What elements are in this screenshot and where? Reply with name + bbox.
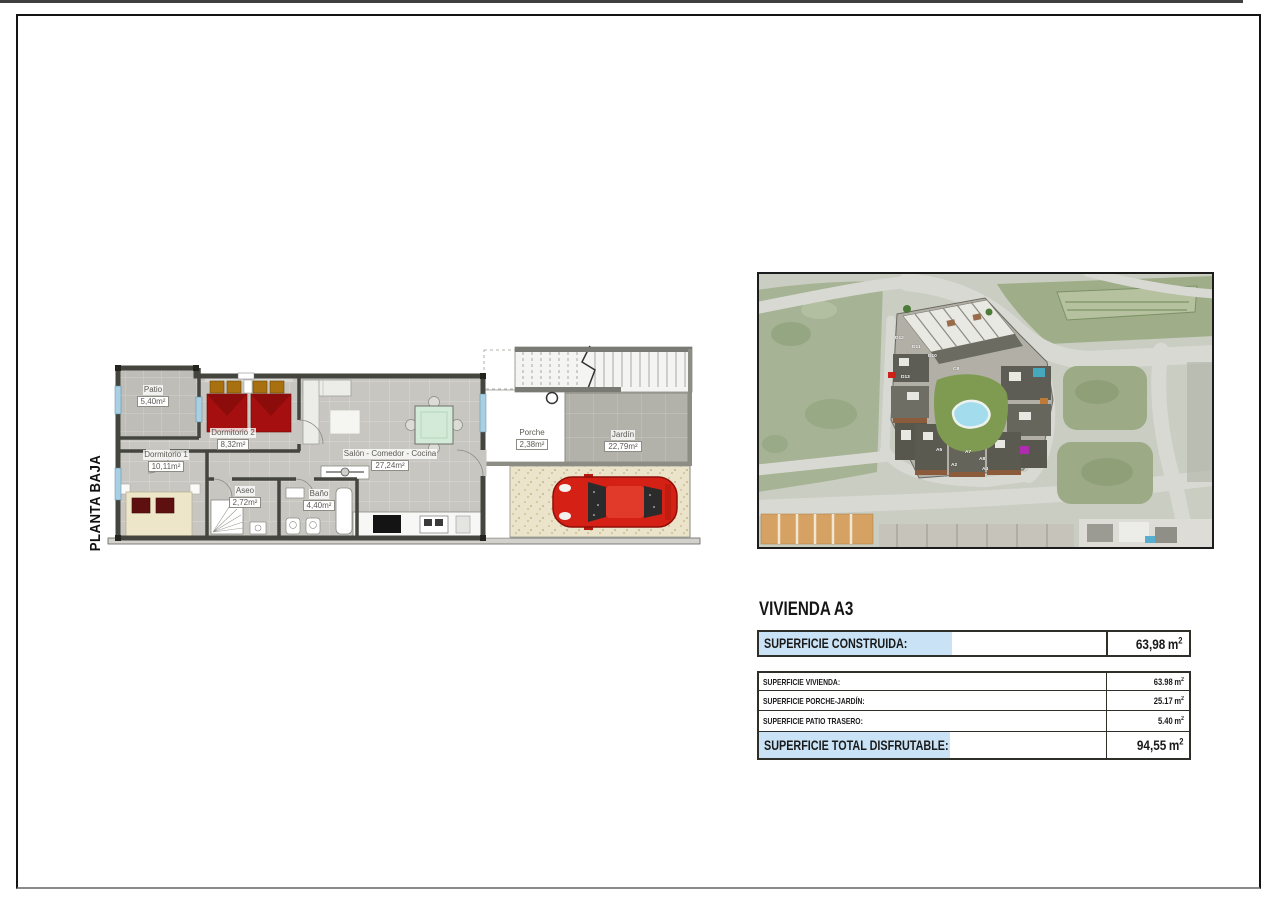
room-label-bano: Baño 4,40m² — [296, 489, 342, 511]
map-unit-label: A4 — [982, 467, 988, 472]
room-label-patio: Patio 5,40m² — [128, 385, 178, 407]
table-row-total: SUPERFICIE TOTAL DISFRUTABLE: 94,55m2 — [759, 731, 1189, 758]
rug — [330, 410, 360, 434]
table-row-patio-trasero: SUPERFICIE PATIO TRASERO: 5.40m2 — [759, 710, 1189, 731]
map-unit-label: D12 — [895, 336, 904, 341]
room-label-salon: Salón - Comedor - Cocina 27,24m² — [328, 449, 452, 471]
unit-title: VIVIENDA A3 — [759, 599, 877, 621]
construida-label-cell: SUPERFICIE CONSTRUIDA: — [759, 632, 952, 655]
room-label-dormitorio2: Dormitorio 2 8,32m² — [197, 428, 269, 450]
single-beds — [120, 484, 200, 536]
map-unit-label: D13 — [901, 375, 910, 380]
areas-table: SUPERFICIE VIVIENDA: 63.98m2 SUPERFICIE … — [757, 671, 1191, 760]
room-label-dormitorio1: Dormitorio 1 10,11m² — [132, 450, 200, 472]
table-row-porche-jardin: SUPERFICIE PORCHE-JARDÍN: 25.17m2 — [759, 690, 1189, 710]
car — [553, 474, 677, 530]
total-value-cell: 94,55m2 — [1106, 732, 1189, 758]
map-unit-label: D11 — [912, 345, 921, 350]
superficie-construida-row: SUPERFICIE CONSTRUIDA: 63,98m2 — [757, 630, 1191, 657]
construida-value-cell: 63,98m2 — [1106, 632, 1189, 655]
page-top-edge — [0, 0, 1243, 3]
map-unit-label: D10 — [928, 354, 937, 359]
map-unit-label: C8 — [953, 367, 959, 372]
total-label-cell: SUPERFICIE TOTAL DISFRUTABLE: — [759, 732, 950, 758]
map-unit-label: A5 — [936, 448, 942, 453]
room-label-aseo: Aseo 2,72m² — [223, 486, 267, 508]
column — [547, 393, 558, 404]
map-unit-label: A7 — [965, 450, 971, 455]
floor-name: PLANTA BAJA — [87, 454, 105, 553]
site-map: D12 D11 D10 C8 D13 A5 A7 A8 A2 A4 — [757, 272, 1214, 549]
room-label-jardin: Jardín 22,79m² — [596, 430, 650, 452]
aerial-photo — [757, 272, 1214, 549]
map-unit-label: A2 — [951, 463, 957, 468]
map-unit-label: A8 — [979, 457, 985, 462]
kitchen-counter — [353, 512, 481, 536]
table-row-vivienda: SUPERFICIE VIVIENDA: 63.98m2 — [759, 673, 1189, 690]
room-label-porche: Porche 2,38m² — [506, 428, 558, 450]
stairs — [484, 346, 692, 392]
